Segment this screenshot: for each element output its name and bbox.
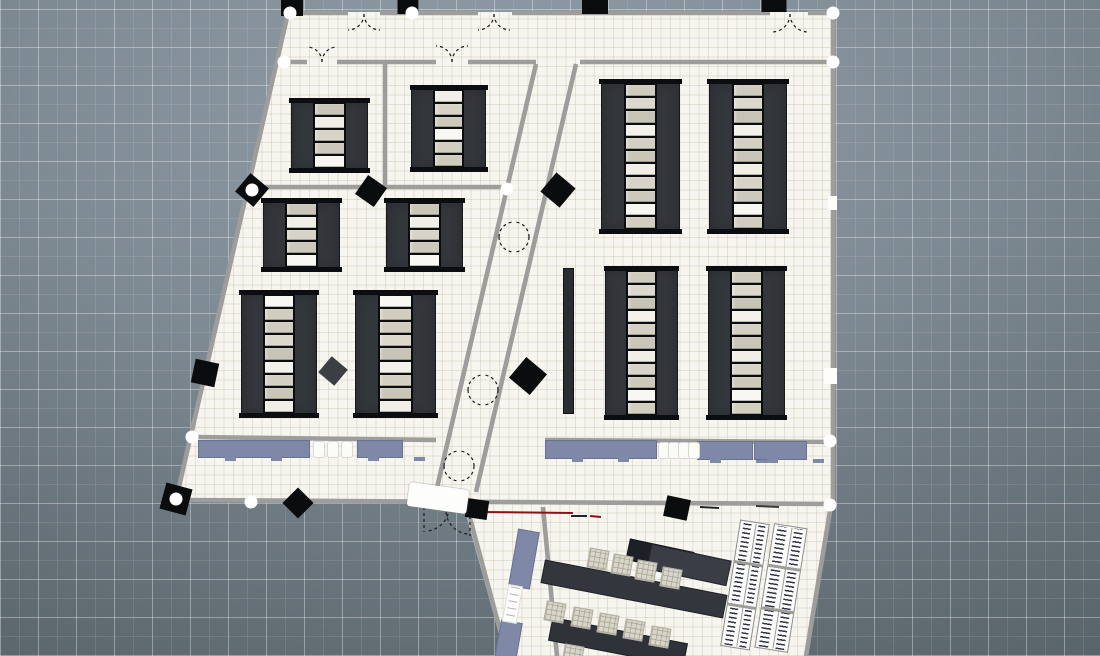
wall[interactable] <box>543 507 557 656</box>
door-swing-arc[interactable] <box>444 466 459 481</box>
junction-dot[interactable] <box>827 7 840 20</box>
wall[interactable] <box>436 64 536 492</box>
junction-dot[interactable] <box>186 431 199 444</box>
door-swing-arc[interactable] <box>499 237 514 252</box>
door-swing-arc[interactable] <box>459 451 474 466</box>
column[interactable] <box>509 357 547 395</box>
junction-dot[interactable] <box>170 493 183 506</box>
door-swing-arc[interactable] <box>478 14 494 30</box>
junction-dot[interactable] <box>245 496 258 509</box>
wall[interactable] <box>806 505 831 656</box>
door-swing-arc[interactable] <box>772 14 790 32</box>
column[interactable] <box>582 0 608 14</box>
floor-marking <box>700 507 719 508</box>
door-swing-arc[interactable] <box>452 46 468 62</box>
floor-marking <box>756 506 779 507</box>
door-swing-arc[interactable] <box>436 46 452 62</box>
door-swing-arc[interactable] <box>468 375 483 390</box>
column[interactable] <box>282 487 313 518</box>
wall[interactable] <box>476 64 576 492</box>
door-swing-arc[interactable] <box>790 14 808 32</box>
junction-dot[interactable] <box>501 183 514 196</box>
door-swing-arc[interactable] <box>494 14 510 30</box>
junction-dot[interactable] <box>827 56 840 69</box>
column[interactable] <box>355 175 387 207</box>
floor-marking <box>590 516 601 517</box>
walls-layer <box>0 0 1100 656</box>
column[interactable] <box>465 498 489 520</box>
column[interactable] <box>191 359 219 387</box>
junction-dot[interactable] <box>824 435 837 448</box>
junction-dot[interactable] <box>278 56 291 69</box>
floor-marking <box>481 512 573 513</box>
door-swing-arc[interactable] <box>446 512 468 534</box>
plan-canvas[interactable] <box>0 0 1100 656</box>
wall[interactable] <box>467 507 507 656</box>
door-swing-arc[interactable] <box>514 222 529 237</box>
wall[interactable] <box>545 440 833 442</box>
wall[interactable] <box>176 500 833 504</box>
wall[interactable] <box>193 437 436 440</box>
column[interactable] <box>318 356 348 386</box>
door-swing-arc[interactable] <box>514 237 529 252</box>
door-swing-arc[interactable] <box>427 508 449 531</box>
door-swing-arc[interactable] <box>459 466 474 481</box>
door-swing-arc[interactable] <box>499 222 514 237</box>
junction-dot[interactable] <box>284 7 297 20</box>
door-swing-arc[interactable] <box>307 47 322 62</box>
column[interactable] <box>762 0 787 12</box>
window-marker[interactable] <box>824 368 837 384</box>
column[interactable] <box>663 495 691 521</box>
door-swing-arc[interactable] <box>364 14 380 30</box>
junction-dot[interactable] <box>406 7 419 20</box>
window-marker[interactable] <box>828 196 837 210</box>
junction-dot[interactable] <box>824 499 837 512</box>
junction-dot[interactable] <box>246 184 259 197</box>
door-swing-arc[interactable] <box>348 14 364 30</box>
door-swing-arc[interactable] <box>468 390 483 405</box>
door-swing-arc[interactable] <box>322 47 337 62</box>
door-swing-arc[interactable] <box>483 375 498 390</box>
wall[interactable] <box>176 13 288 500</box>
